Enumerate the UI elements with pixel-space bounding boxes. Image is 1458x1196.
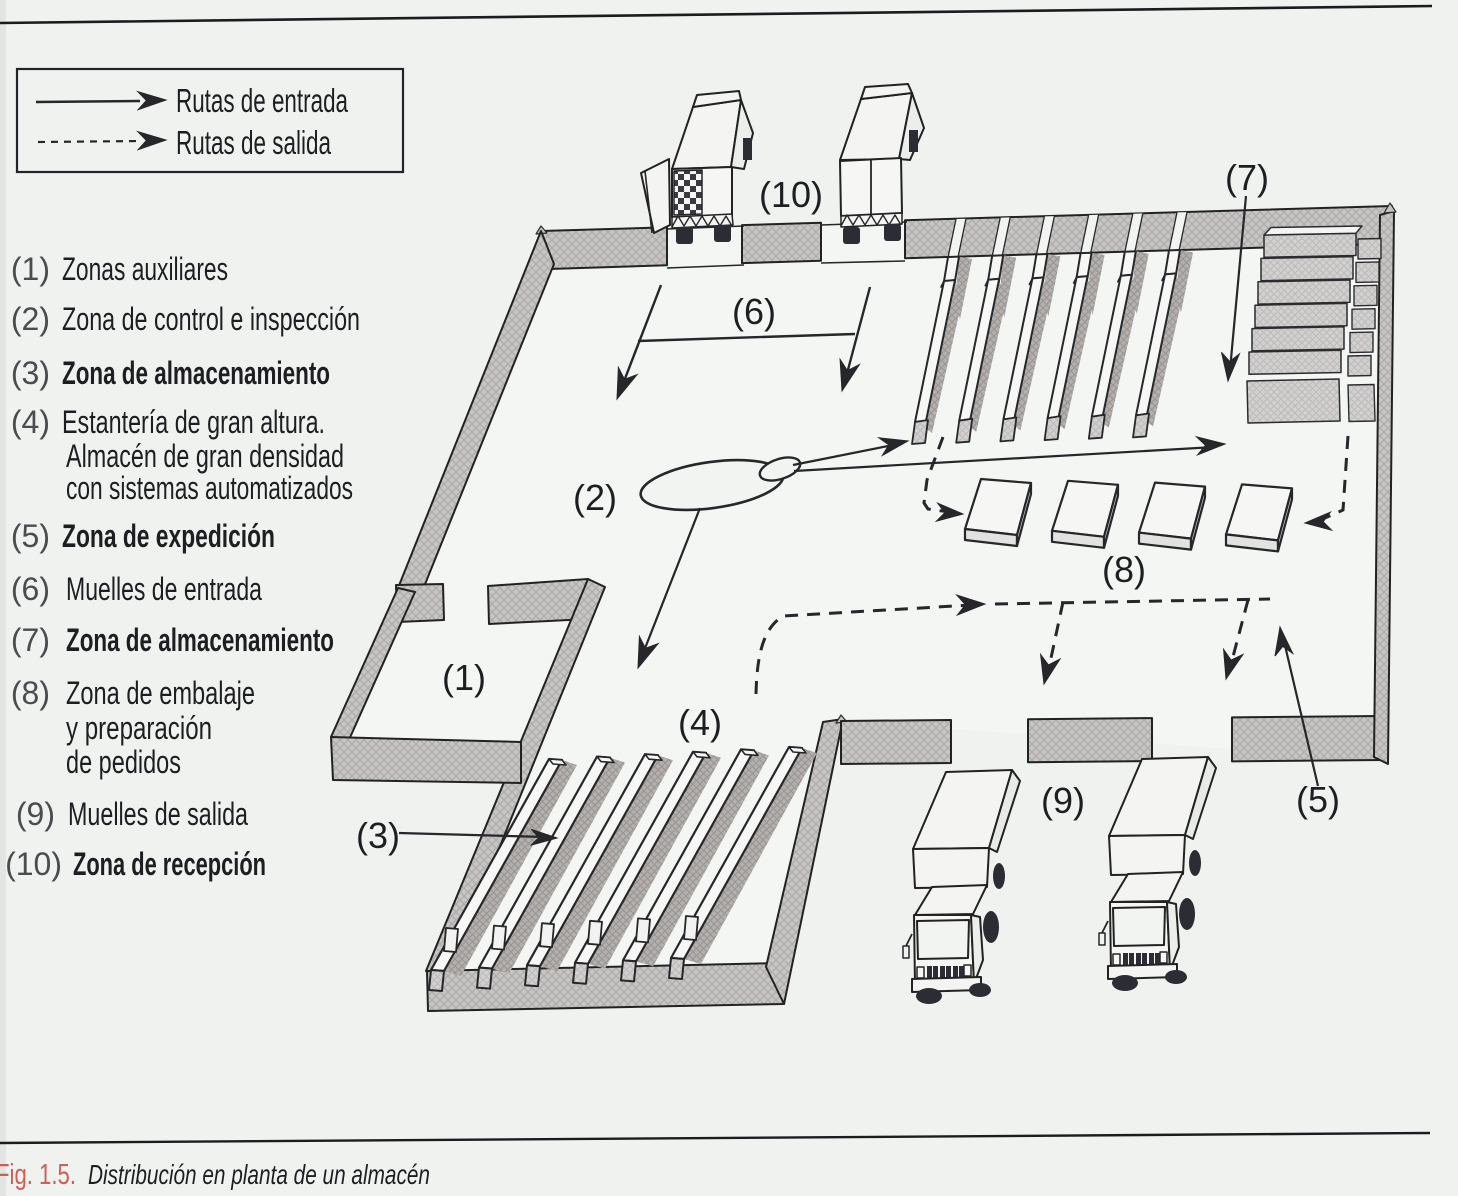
svg-text:Zona de almacenamiento: Zona de almacenamiento	[66, 622, 334, 658]
svg-text:(3): (3)	[11, 355, 50, 391]
svg-text:(2): (2)	[11, 301, 50, 337]
svg-text:Rutas de salida: Rutas de salida	[176, 124, 331, 161]
svg-text:Fig. 1.5.: Fig. 1.5.	[0, 1159, 76, 1191]
svg-text:(6): (6)	[732, 291, 776, 332]
svg-text:Zonas auxiliares: Zonas auxiliares	[62, 251, 228, 287]
svg-text:Zona de recepción: Zona de recepción	[73, 846, 266, 882]
svg-text:(5): (5)	[1296, 779, 1340, 820]
svg-text:(8): (8)	[11, 675, 50, 711]
svg-text:(6): (6)	[11, 571, 50, 607]
svg-text:(10): (10)	[759, 174, 823, 215]
svg-text:(3): (3)	[356, 815, 400, 856]
svg-text:Zona de embalaje: Zona de embalaje	[66, 675, 255, 711]
svg-text:con sistemas automatizados: con sistemas automatizados	[66, 470, 353, 506]
svg-text:Zona de expedición: Zona de expedición	[62, 518, 275, 554]
svg-text:(7): (7)	[11, 622, 50, 658]
svg-text:(4): (4)	[11, 404, 50, 440]
svg-text:(9): (9)	[1041, 780, 1085, 821]
svg-text:(4): (4)	[678, 702, 722, 743]
svg-text:Muelles de salida: Muelles de salida	[68, 796, 248, 832]
svg-text:Zona de control e inspección: Zona de control e inspección	[62, 301, 360, 337]
svg-text:Distribución en planta de un a: Distribución en planta de un almacén	[88, 1159, 430, 1190]
svg-text:Zona de almacenamiento: Zona de almacenamiento	[62, 355, 330, 391]
svg-text:(7): (7)	[1225, 157, 1269, 198]
svg-text:(2): (2)	[573, 477, 617, 518]
svg-text:(9): (9)	[16, 796, 55, 832]
svg-text:de pedidos: de pedidos	[66, 744, 181, 780]
svg-text:Rutas de entrada: Rutas de entrada	[176, 82, 348, 119]
svg-text:(10): (10)	[5, 846, 62, 882]
svg-text:Almacén de gran densidad: Almacén de gran densidad	[66, 438, 344, 474]
svg-text:(8): (8)	[1102, 549, 1146, 590]
svg-text:(1): (1)	[442, 657, 486, 698]
svg-text:Estantería de gran altura.: Estantería de gran altura.	[62, 404, 325, 440]
svg-text:(1): (1)	[11, 251, 50, 287]
svg-text:y preparación: y preparación	[66, 710, 212, 746]
svg-text:Muelles de entrada: Muelles de entrada	[66, 571, 262, 607]
svg-text:(5): (5)	[11, 518, 50, 554]
